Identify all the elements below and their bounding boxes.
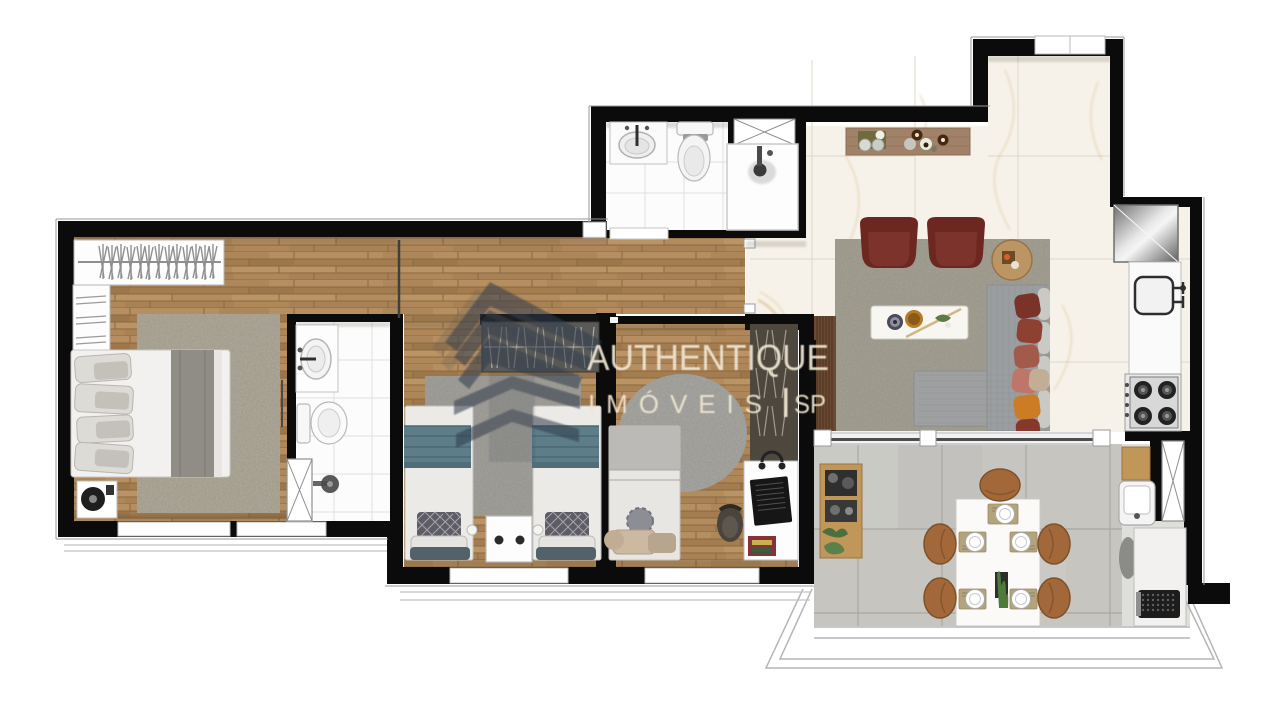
svg-text:AUTHENTIQUE: AUTHENTIQUE bbox=[587, 337, 829, 378]
svg-text:SP: SP bbox=[794, 389, 826, 419]
svg-text:IMÓVEIS: IMÓVEIS bbox=[588, 389, 774, 419]
